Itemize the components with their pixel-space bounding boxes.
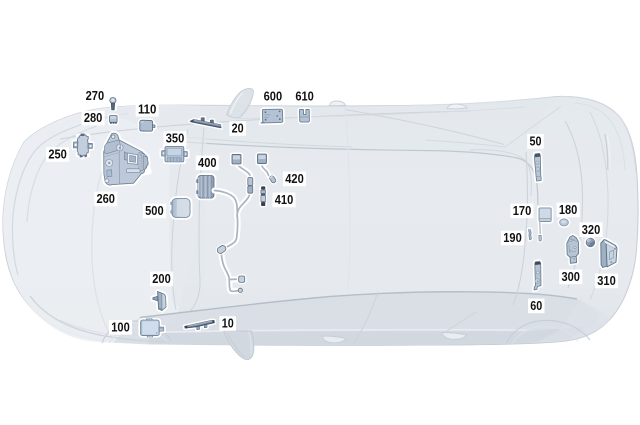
svg-text:250: 250	[48, 148, 67, 162]
svg-text:310: 310	[597, 274, 616, 288]
svg-text:20: 20	[232, 122, 244, 136]
svg-text:410: 410	[275, 193, 294, 207]
svg-text:170: 170	[513, 204, 532, 218]
svg-text:350: 350	[166, 132, 185, 146]
svg-text:60: 60	[530, 299, 542, 313]
svg-text:500: 500	[145, 204, 164, 218]
svg-text:260: 260	[96, 192, 115, 206]
svg-text:300: 300	[561, 270, 580, 284]
svg-text:200: 200	[152, 272, 171, 286]
svg-text:190: 190	[503, 231, 522, 245]
svg-text:420: 420	[285, 172, 304, 186]
svg-text:50: 50	[530, 135, 542, 149]
svg-text:180: 180	[559, 203, 578, 217]
svg-text:320: 320	[582, 223, 601, 237]
svg-text:110: 110	[138, 102, 157, 116]
svg-text:270: 270	[86, 89, 105, 103]
svg-text:10: 10	[222, 317, 234, 331]
svg-text:100: 100	[111, 320, 130, 334]
svg-text:280: 280	[84, 111, 103, 125]
svg-text:610: 610	[295, 89, 314, 103]
svg-text:400: 400	[198, 156, 217, 170]
svg-text:600: 600	[264, 89, 283, 103]
